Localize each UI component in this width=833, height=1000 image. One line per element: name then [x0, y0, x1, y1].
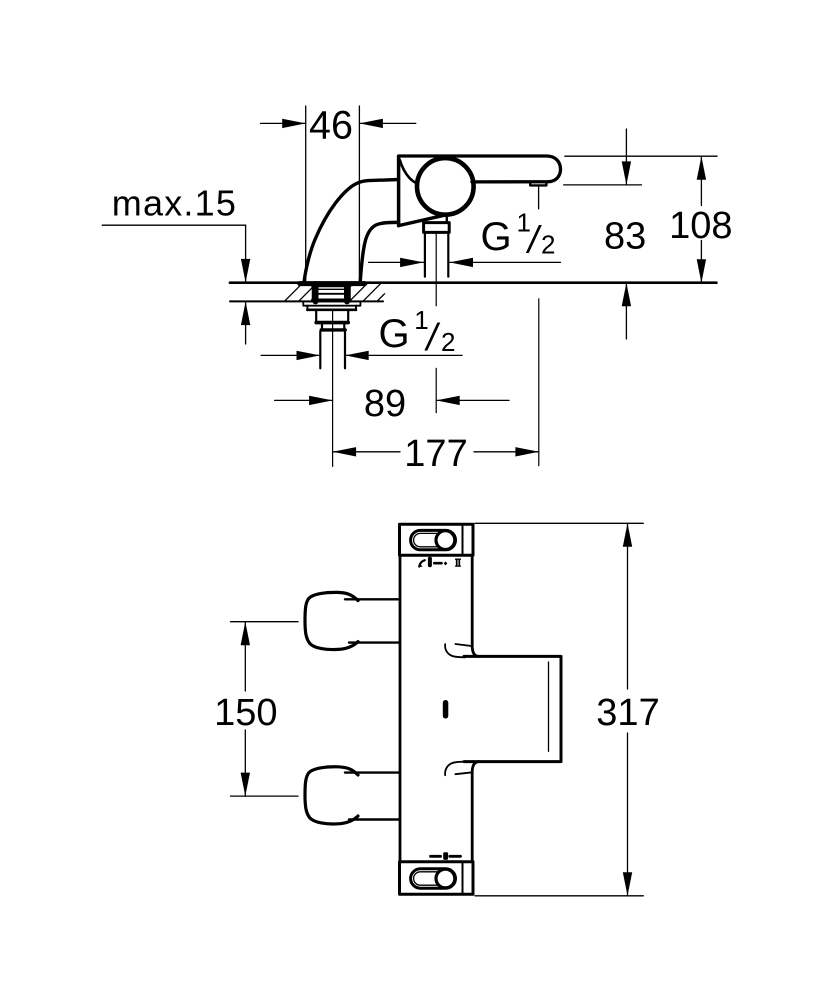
svg-text:G: G [481, 215, 512, 259]
svg-text:2: 2 [541, 230, 555, 260]
svg-text:46: 46 [309, 103, 353, 147]
svg-text:2: 2 [441, 327, 455, 357]
svg-text:108: 108 [669, 205, 732, 247]
svg-text:177: 177 [404, 433, 467, 475]
svg-text:max.15: max.15 [112, 183, 237, 224]
svg-text:83: 83 [604, 216, 646, 258]
svg-text:317: 317 [596, 692, 659, 734]
svg-text:150: 150 [214, 692, 277, 734]
svg-text:89: 89 [364, 383, 406, 425]
svg-text:G: G [379, 312, 410, 356]
